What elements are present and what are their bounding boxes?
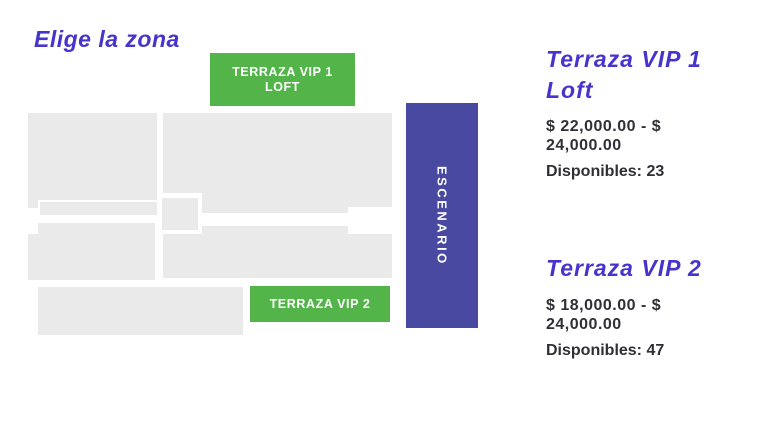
section-block (202, 226, 348, 234)
section-block (163, 234, 392, 278)
section-block (40, 202, 157, 215)
zone-button-terraza-vip-2[interactable]: TERRAZA VIP 2 (250, 286, 390, 322)
section-block (28, 200, 38, 208)
section-block (38, 287, 243, 335)
zone-button-terraza-vip-1-loft[interactable]: TERRAZA VIP 1 LOFT (210, 53, 355, 106)
section-block (38, 223, 155, 234)
zone-name: Terraza VIP 1 Loft (546, 44, 722, 106)
availability-count: 23 (646, 163, 664, 180)
stage-block: ESCENARIO (406, 103, 478, 328)
availability-label: Disponibles: (546, 163, 642, 180)
zone-button-label: TERRAZA VIP 1 LOFT (218, 65, 347, 95)
section-block (202, 193, 348, 213)
zone-info-panel: Terraza VIP 1 Loft $ 22,000.00 - $ 24,00… (546, 0, 722, 436)
section-block (163, 113, 392, 193)
availability-count: 47 (646, 342, 664, 359)
stage-label: ESCENARIO (435, 166, 450, 266)
zone-price-range: $ 18,000.00 - $ 24,000.00 (546, 296, 722, 334)
zone-price-range: $ 22,000.00 - $ 24,000.00 (546, 117, 722, 155)
section-block (28, 234, 155, 280)
section-block (162, 198, 198, 230)
availability-label: Disponibles: (546, 342, 642, 359)
venue-map: TERRAZA VIP 1 LOFT TERRAZA VIP 2 ESCENAR… (0, 0, 500, 436)
section-block (28, 113, 157, 200)
zone-name: Terraza VIP 2 (546, 253, 722, 284)
zone-availability: Disponibles: 23 (546, 163, 722, 181)
zone-availability: Disponibles: 47 (546, 342, 722, 360)
zone-button-label: TERRAZA VIP 2 (270, 297, 371, 312)
section-block (348, 193, 392, 207)
